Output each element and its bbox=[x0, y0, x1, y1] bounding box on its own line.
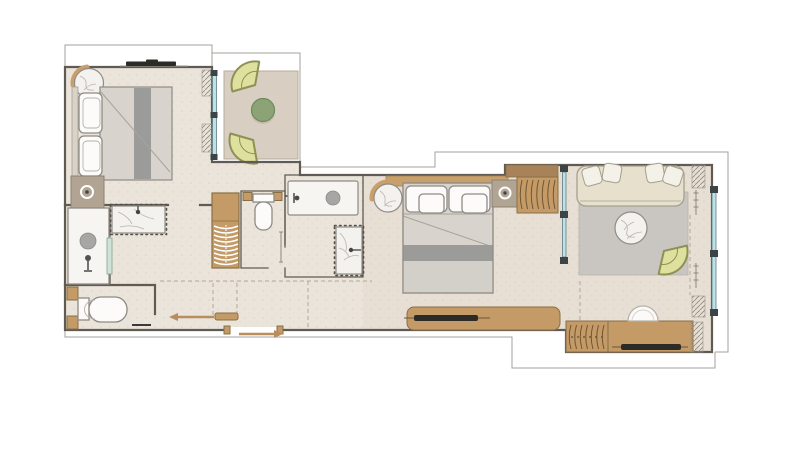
wc-toilet-bowl bbox=[255, 202, 272, 230]
curtain-hatch bbox=[691, 322, 703, 352]
console-tv bbox=[414, 315, 478, 321]
sideboard-tv bbox=[621, 344, 681, 350]
wood-block bbox=[67, 316, 78, 329]
blanket-stripe bbox=[403, 245, 493, 261]
door-frame bbox=[211, 154, 218, 160]
coffee-table bbox=[615, 212, 647, 244]
lamp-center bbox=[85, 190, 89, 194]
wood-block bbox=[67, 287, 78, 300]
curtain-hatch bbox=[202, 124, 212, 152]
entry bbox=[224, 326, 283, 338]
toilet-cistern bbox=[78, 298, 89, 320]
shower-glass-panel bbox=[107, 238, 112, 274]
vanity-faucet bbox=[136, 210, 140, 214]
door-frame bbox=[211, 112, 218, 118]
pillow-front bbox=[419, 194, 444, 213]
shower-head bbox=[85, 255, 91, 261]
wall-tv bbox=[126, 62, 176, 67]
sofa-cushion bbox=[581, 165, 603, 187]
wood-corner-block bbox=[243, 193, 252, 201]
wc-cistern bbox=[253, 194, 274, 202]
lamp-center bbox=[503, 191, 506, 194]
pillow-front bbox=[462, 194, 487, 213]
sofa-cushion bbox=[645, 163, 666, 184]
staircase bbox=[212, 193, 239, 268]
sofa-cushion bbox=[602, 163, 623, 184]
floor-plan-canvas bbox=[0, 0, 800, 450]
bed-headboard bbox=[72, 87, 78, 181]
shower-drain bbox=[326, 191, 340, 205]
entry-jamb bbox=[224, 326, 230, 334]
toilet-bowl bbox=[89, 297, 127, 322]
floor-plan-drawing bbox=[0, 0, 800, 450]
shower-control-knob bbox=[295, 196, 300, 201]
shower-drain bbox=[80, 233, 96, 249]
blanket-lower bbox=[403, 261, 493, 292]
door-frame bbox=[211, 70, 218, 76]
round-side-table bbox=[374, 184, 402, 212]
balcony bbox=[222, 54, 298, 170]
wall-tv-mount bbox=[146, 60, 158, 63]
sliding-door-panel bbox=[215, 313, 238, 320]
balcony-round-table bbox=[252, 99, 275, 122]
wardrobe-top-panel bbox=[506, 165, 558, 177]
